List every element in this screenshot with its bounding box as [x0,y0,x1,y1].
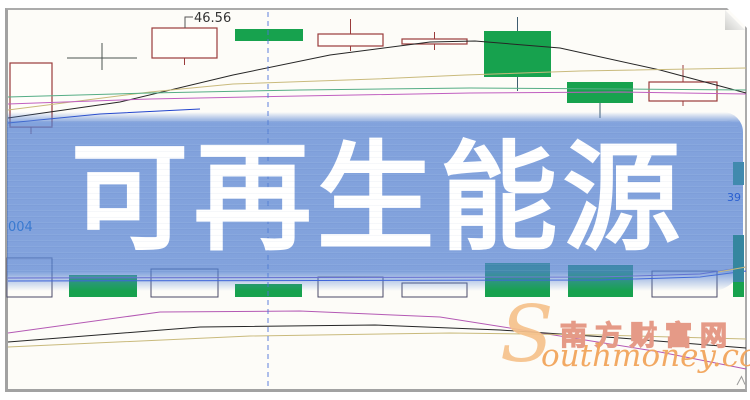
title-banner: 可再生能源 [7,112,743,291]
banner-title: 可再生能源 [64,139,685,265]
page-fold-corner-icon [725,10,745,30]
thumbnail-image: 46.56 可再生能源 004 39 S 南方财富网 outhmoney.com [0,0,750,400]
left-axis-partial-label: 004 [8,220,33,235]
right-axis-partial-label: 39 [727,191,741,204]
